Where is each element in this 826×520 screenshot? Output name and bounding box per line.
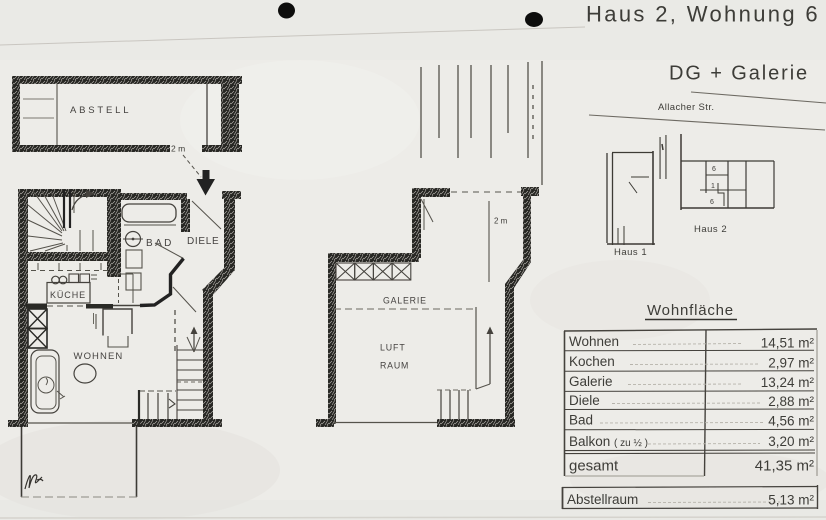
svg-text:Diele: Diele xyxy=(569,393,600,408)
svg-text:Wohnen: Wohnen xyxy=(569,334,619,349)
svg-text:Bad: Bad xyxy=(569,413,593,428)
svg-text:Galerie: Galerie xyxy=(569,374,613,389)
svg-text:DIELE: DIELE xyxy=(187,236,219,247)
svg-text:14,51 m²: 14,51 m² xyxy=(761,336,815,351)
svg-text:Haus 2, Wohnung 6: Haus 2, Wohnung 6 xyxy=(586,2,820,27)
svg-text:2 m: 2 m xyxy=(494,217,508,226)
svg-text:DG + Galerie: DG + Galerie xyxy=(669,63,809,85)
svg-text:3,20 m²: 3,20 m² xyxy=(768,434,814,449)
svg-text:LUFT: LUFT xyxy=(380,343,406,353)
svg-text:6: 6 xyxy=(710,199,714,206)
svg-text:13,24 m²: 13,24 m² xyxy=(761,375,815,390)
svg-text:KÜCHE: KÜCHE xyxy=(50,290,86,300)
svg-text:ABSTELL: ABSTELL xyxy=(70,105,131,116)
svg-text:2,88 m²: 2,88 m² xyxy=(768,394,814,409)
svg-text:Haus 1: Haus 1 xyxy=(614,247,647,258)
svg-text:5,13 m²: 5,13 m² xyxy=(768,493,814,508)
svg-text:6: 6 xyxy=(712,166,716,173)
svg-text:1: 1 xyxy=(711,183,715,190)
svg-text:BAD: BAD xyxy=(146,238,174,249)
svg-text:4,56 m²: 4,56 m² xyxy=(768,414,814,429)
svg-text:Abstellraum: Abstellraum xyxy=(567,492,638,507)
svg-text:Wohnfläche: Wohnfläche xyxy=(647,302,734,319)
svg-text:Kochen: Kochen xyxy=(569,354,615,369)
svg-text:Allacher Str.: Allacher Str. xyxy=(658,102,714,113)
svg-text:RAUM: RAUM xyxy=(380,361,409,371)
svg-text:GALERIE: GALERIE xyxy=(383,296,427,306)
svg-text:41,35 m²: 41,35 m² xyxy=(755,458,814,475)
svg-text:WOHNEN: WOHNEN xyxy=(74,351,124,362)
svg-text:Haus 2: Haus 2 xyxy=(694,224,727,235)
svg-text:2 m: 2 m xyxy=(171,144,185,154)
svg-text:2,97 m²: 2,97 m² xyxy=(768,356,814,371)
svg-text:gesamt: gesamt xyxy=(569,458,619,475)
